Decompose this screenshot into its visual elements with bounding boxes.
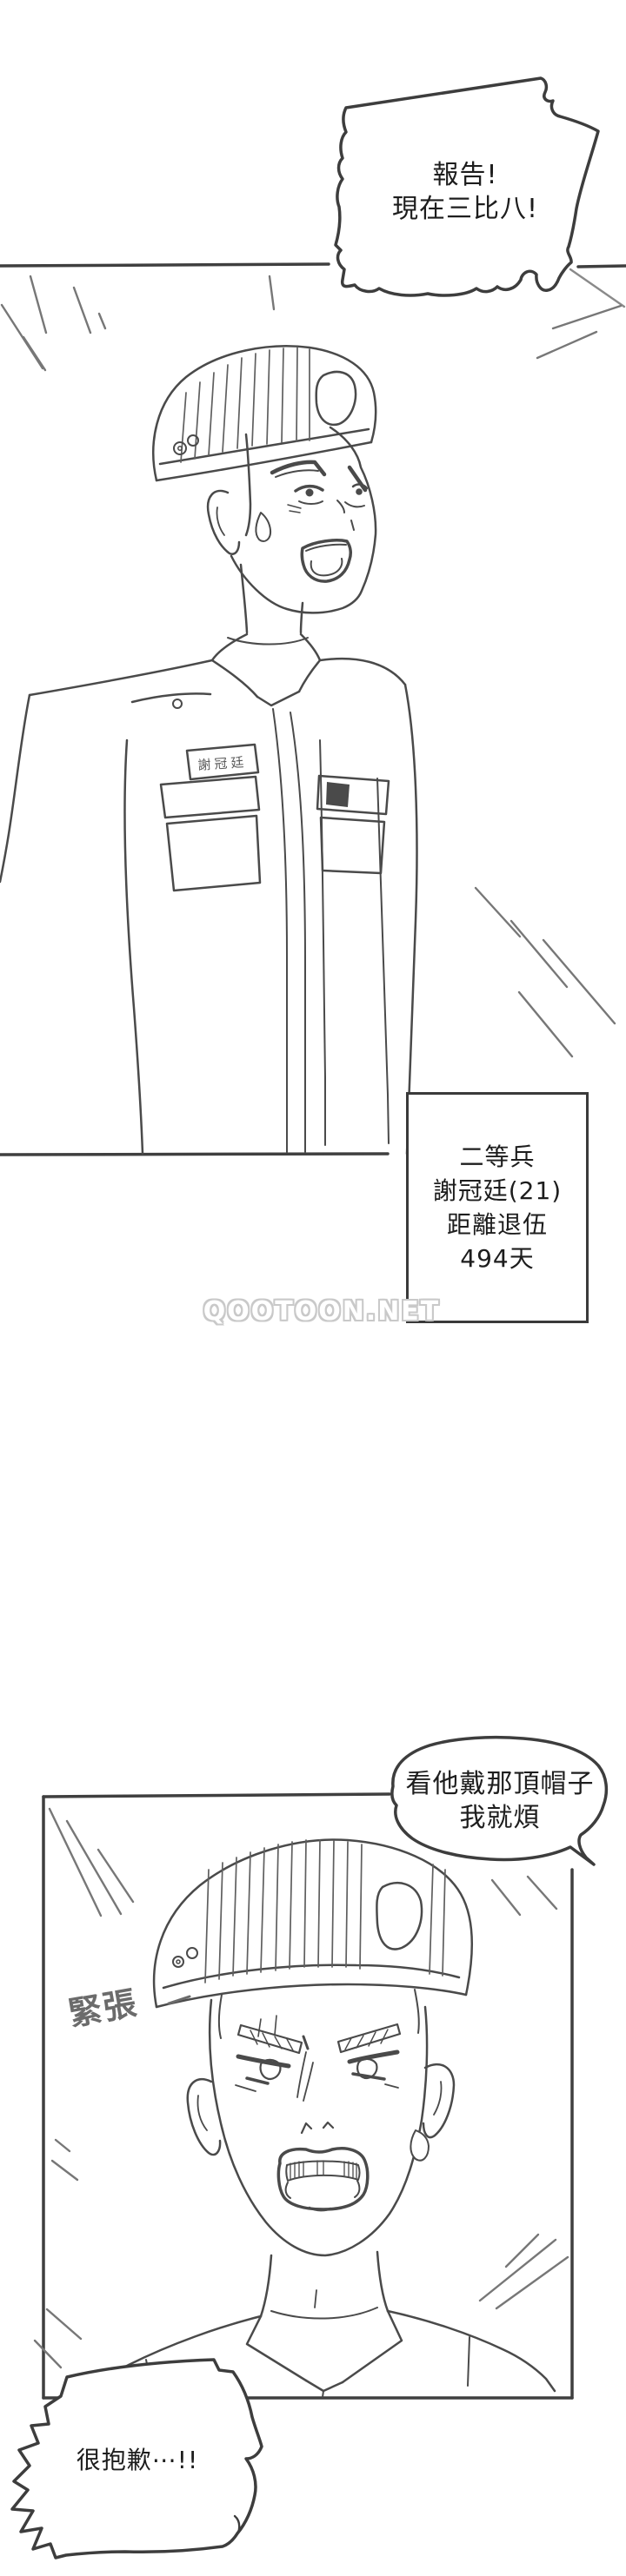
soldier-1-drawing: 謝冠廷 [0, 346, 417, 1154]
panel-1-speed-lines [2, 269, 624, 1056]
report-line-2: 現在三比八! [365, 192, 565, 226]
apology-line-1: 很抱歉⋯!! [42, 2443, 233, 2477]
site-watermark: QOOTOON.NET [196, 1296, 448, 1327]
annoyed-line-1: 看他戴那頂帽子 [400, 1767, 600, 1801]
beret-1 [153, 346, 376, 480]
apology-bubble-text: 很抱歉⋯!! [42, 2443, 233, 2477]
character-info-box: 二等兵 謝冠廷(21) 距離退伍 494天 [406, 1092, 589, 1323]
annoyed-line-2: 我就煩 [400, 1801, 600, 1835]
info-discharge-label: 距離退伍 [447, 1208, 548, 1242]
info-days-left: 494天 [460, 1242, 534, 1275]
face-2 [188, 1990, 454, 2255]
annoyed-bubble-text: 看他戴那頂帽子 我就煩 [400, 1767, 600, 1835]
report-line-1: 報告! [365, 158, 565, 192]
info-rank: 二等兵 [459, 1140, 535, 1174]
uniform-1 [0, 565, 417, 1154]
webtoon-page: 謝冠廷 [0, 0, 626, 2576]
name-tag-text: 謝冠廷 [197, 754, 248, 773]
soldier-2-drawing [82, 1839, 555, 2397]
report-bubble-text: 報告! 現在三比八! [365, 158, 565, 226]
face-1 [208, 427, 376, 613]
panel-2-speed-lines [35, 1809, 568, 2367]
beret-2 [154, 1839, 472, 2007]
info-name-age: 謝冠廷(21) [433, 1174, 562, 1208]
panel-1-border [0, 264, 626, 1155]
